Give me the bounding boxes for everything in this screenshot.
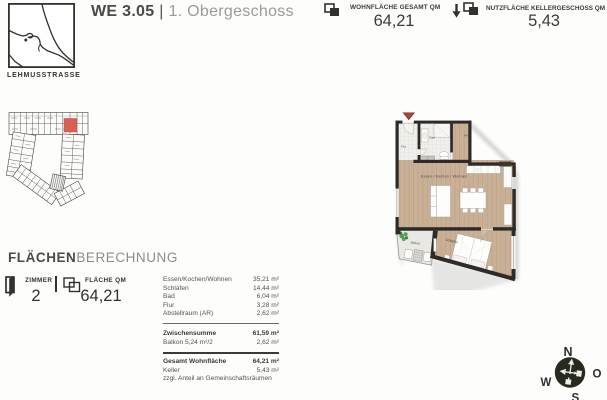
- svg-text:S: S: [572, 393, 580, 400]
- svg-text:AR: AR: [464, 134, 469, 138]
- svg-text:Essen / Kochen / Wohnen: Essen / Kochen / Wohnen: [421, 175, 467, 179]
- svg-text:W: W: [541, 377, 552, 389]
- svg-text:N: N: [564, 345, 573, 359]
- svg-text:Flur: Flur: [401, 145, 406, 149]
- svg-text:O: O: [593, 369, 602, 381]
- svg-text:Bad: Bad: [430, 136, 436, 140]
